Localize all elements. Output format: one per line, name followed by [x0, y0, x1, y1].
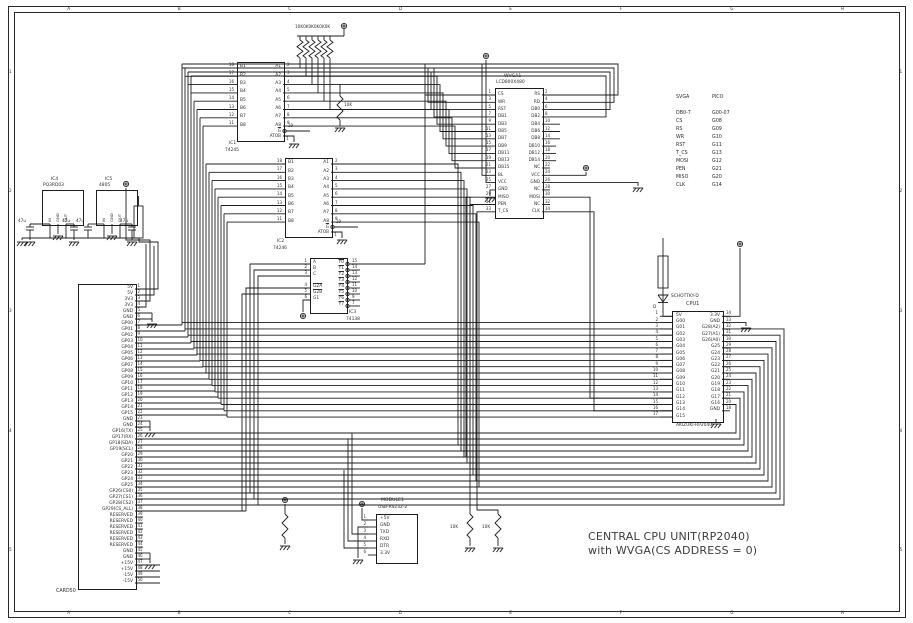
xcvr-pin-number: 14	[268, 192, 282, 196]
lcd-pin-number: 15	[478, 141, 491, 145]
cap-label: 47u	[18, 219, 26, 223]
lcd-pin-label: RST	[498, 107, 506, 111]
lcd-pin-label: DB4	[512, 122, 540, 126]
cpu-pin-label: G10	[676, 383, 685, 387]
resistor-label: 10K	[344, 103, 352, 107]
lcd-pin-label: DB5	[498, 129, 507, 133]
card50-pin-number: 28	[138, 446, 143, 450]
xcvr-pin-number: 16	[268, 176, 282, 180]
card50-pin-number: 3	[138, 296, 141, 300]
cpu-pin-number: 11	[644, 374, 658, 378]
card50-pin-number: 29	[138, 452, 143, 456]
lcd-pin-label: WR	[498, 100, 505, 104]
xcvr-pin-number: 3	[335, 167, 338, 171]
xcvr-pin-number: 18	[220, 63, 234, 67]
lcd-pin-label: DB0	[512, 107, 540, 111]
lcd-pin-label: NC	[512, 165, 540, 169]
ic3-pin-label: C	[313, 273, 316, 277]
pico-table-gpio: G09	[712, 128, 722, 133]
xcvr-pin-label: B8	[288, 220, 294, 224]
lcd-pin-number: 17	[478, 148, 491, 152]
lcd-pin-label: DB12	[512, 151, 540, 155]
pico-table-signal: RS	[676, 128, 682, 133]
lcd-pin-label: DB11	[498, 151, 509, 155]
lcd-pin-number: 30	[545, 192, 550, 196]
pico-table-header: PICO	[712, 96, 723, 101]
ic3-pin-number: 7	[352, 301, 355, 305]
cpu-pin-label: 5V	[676, 314, 682, 318]
cpu-pin-label: G25	[694, 345, 720, 349]
lcd-pin-number: 21	[478, 163, 491, 167]
pullup-network-label: 10K0K0K0K0K0K	[295, 25, 330, 29]
module-pin-number: 3	[358, 529, 366, 533]
xcvr-pin-number: 4	[335, 176, 338, 180]
ruler-column-letter: C	[288, 611, 291, 615]
card50-pin-number: 10	[138, 338, 143, 342]
reg1-ref: IC4	[51, 178, 58, 182]
card50-pin-number: 5	[138, 308, 141, 312]
pico-table-gpio: G14	[712, 184, 722, 189]
lcd-pin-label: DB6	[512, 129, 540, 133]
ruler-column-letter: F	[620, 611, 622, 615]
cpu-pin-label: G24	[694, 352, 720, 356]
cpu-pin-label: G02	[676, 333, 685, 337]
lcd-pin-label: DB1	[498, 114, 507, 118]
cpu-pin-number: 28	[726, 349, 731, 353]
card50-pin-number: 11	[138, 344, 143, 348]
xcvr-pin-number: 12	[220, 113, 234, 117]
lcd-pin-label: MISO	[498, 195, 509, 199]
cpu-pin-number: 14	[644, 393, 658, 397]
card50-pin-number: 44	[138, 542, 143, 546]
cpu-pin-label: G23	[694, 358, 720, 362]
ic3-pin-number: 1	[295, 259, 307, 263]
card50-pin-label: 5V	[80, 286, 133, 290]
xcvr-pin-label: A1	[254, 65, 281, 69]
card50-pin-number: 36	[138, 494, 143, 498]
card50-pin-number: 1	[138, 284, 141, 288]
card50-pin-number: 14	[138, 362, 143, 366]
regulator-pin-label: IN	[48, 218, 52, 222]
card50-pin-number: 13	[138, 356, 143, 360]
pico-table-signal: MISO	[676, 176, 688, 181]
ruler-row-number: 2	[900, 189, 903, 193]
cpu-pin-number: 24	[726, 374, 731, 378]
card50-pin-number: 47	[138, 560, 143, 564]
cpu-pin-label: G03	[676, 339, 685, 343]
lcd-pin-number: 23	[478, 170, 491, 174]
xcvr-pin-number: 15	[268, 184, 282, 188]
regulator-pin-label: OUT	[64, 214, 68, 222]
reg1-part: PQ3RD03	[43, 184, 64, 188]
ruler-column-letter: C	[288, 7, 291, 11]
cap-label: 47u	[76, 219, 84, 223]
title-line1: CENTRAL CPU UNIT(RP2040)	[588, 531, 750, 542]
xcvr-pin-number: 1	[286, 137, 289, 141]
ic3-pin-number: 3	[295, 271, 307, 275]
lcd-pin-number: 6	[545, 105, 548, 109]
cpu-pin-label: G06	[676, 358, 685, 362]
cpu-pin-number: 17	[644, 412, 658, 416]
xcvr-pin-number: 11	[268, 217, 282, 221]
xcvr-pin-label: A7	[254, 115, 281, 119]
ruler-column-letter: A	[67, 7, 70, 11]
lcd-pin-label: NC	[512, 187, 540, 191]
xcvr-pin-number: 18	[268, 159, 282, 163]
card50-pin-number: 43	[138, 536, 143, 540]
module-pin-label: RXD	[380, 538, 389, 542]
ic1-part: 74245	[225, 149, 239, 153]
xcvr-pin-number: 2	[287, 63, 290, 67]
xcvr-pin-label: B4	[288, 186, 294, 190]
xcvr-pin-label: B6	[240, 107, 246, 111]
ic3-pin-number: 9	[352, 295, 355, 299]
cpu-pin-label: G07	[676, 364, 685, 368]
lcd-pin-number: 22	[545, 163, 550, 167]
ruler-column-letter: D	[399, 611, 402, 615]
ruler-column-letter: D	[399, 7, 402, 11]
cpu-pin-label: G00	[676, 320, 685, 324]
lcd-pin-label: CLK	[512, 209, 540, 213]
ruler-row-number: 4	[9, 429, 12, 433]
card50-pin-label: -15V	[80, 580, 133, 584]
ic1-ref: IC1	[229, 142, 236, 146]
module-pin-number: 2	[358, 522, 366, 526]
card50-pin-number: 6	[138, 314, 141, 318]
xcvr-pin-label: B5	[240, 99, 246, 103]
cpu-pin-number: 8	[644, 355, 658, 359]
lcd-pin-number: 34	[545, 207, 550, 211]
ruler-row-number: 2	[9, 189, 12, 193]
lcd-pin-label: DB7	[498, 136, 507, 140]
xcvr-pin-label: B5	[288, 195, 294, 199]
pico-table-signal: MOSI	[676, 160, 688, 165]
lcd-pin-number: 1	[478, 90, 491, 94]
card50-pin-number: 4	[138, 302, 141, 306]
pico-table-signal: DB0-7	[676, 112, 691, 117]
lcd-pin-label: DB9	[498, 144, 507, 148]
lcd-pin-label: DB2	[512, 114, 540, 118]
card50-ref: CARD50	[56, 590, 76, 595]
lcd-pin-label: RS	[512, 92, 540, 96]
xcvr-dir-label: ATOB	[258, 134, 281, 138]
xcvr-pin-label: A4	[302, 186, 329, 190]
ruler-row-number: 4	[900, 429, 903, 433]
cpu-pin-label: G20	[694, 377, 720, 381]
xcvr-pin-number: 2	[335, 159, 338, 163]
ruler-column-letter: A	[67, 611, 70, 615]
card50-pin-number: 40	[138, 518, 143, 522]
xcvr-pin-label: B7	[288, 211, 294, 215]
reg2-ref: IC5	[105, 178, 112, 182]
lcd-pin-label: PEN	[498, 202, 506, 206]
cpu-pin-number: 34	[726, 311, 731, 315]
xcvr-pin-label: B4	[240, 90, 246, 94]
ic3-pin-label: G1	[313, 297, 319, 301]
lcd-pin-number: 24	[545, 170, 550, 174]
card50-pin-number: 41	[138, 524, 143, 528]
cpu-pin-number: 31	[726, 330, 731, 334]
pico-table-signal: T_CS	[676, 152, 688, 157]
lcd-pin-number: 13	[478, 134, 491, 138]
cpu-pin-label: GND	[694, 408, 720, 412]
regulator-pin-label: GND	[56, 213, 60, 222]
pico-table-header: SVGA	[676, 96, 689, 101]
pico-table-gpio: G13	[712, 152, 722, 157]
card50-pin-number: 9	[138, 332, 141, 336]
card50-pin-number: 23	[138, 416, 143, 420]
regulator-pin-label: IN	[102, 218, 106, 222]
ruler-column-letter: E	[509, 7, 512, 11]
cpu-pin-number: 12	[644, 381, 658, 385]
regulator-pin-label: GND	[110, 213, 114, 222]
pico-table-signal: WR	[676, 136, 684, 141]
cpu-pin-number: 26	[726, 362, 731, 366]
lcd-pin-number: 31	[478, 200, 491, 204]
cpu-pin-label: G27(A1)	[694, 333, 720, 337]
xcvr-pin-label: A8	[254, 124, 281, 128]
resistor-label: 10K	[482, 525, 490, 529]
lcd-pin-number: 20	[545, 156, 550, 160]
card50-pin-number: 18	[138, 386, 143, 390]
card50-pin-number: 20	[138, 398, 143, 402]
lcd-pin-number: 4	[545, 97, 548, 101]
cpu-pin-number: 9	[644, 362, 658, 366]
xcvr-pin-number: 14	[220, 96, 234, 100]
card50-pin-number: 45	[138, 548, 143, 552]
card50-pin-number: 15	[138, 368, 143, 372]
cpu-pin-number: 33	[726, 318, 731, 322]
ruler-column-letter: F	[620, 7, 622, 11]
lcd-pin-number: 2	[545, 90, 548, 94]
card50-pin-number: 32	[138, 470, 143, 474]
lcd-pin-label: GND	[498, 187, 508, 191]
cpu-pin-number: 7	[644, 349, 658, 353]
cpu-pin-number: 5	[644, 337, 658, 341]
card50-pin-number: 42	[138, 530, 143, 534]
card50-pin-number: 38	[138, 506, 143, 510]
ic3-part: 74138	[346, 318, 360, 322]
card50-pin-number: 19	[138, 392, 143, 396]
xcvr-pin-number: 4	[287, 80, 290, 84]
lcd-pin-label: GND	[512, 180, 540, 184]
cpu-pin-label: G12	[676, 396, 685, 400]
cpu-pin-label: G01	[676, 326, 685, 330]
xcvr-pin-number: 5	[287, 88, 290, 92]
lcd-part: LCD800X480	[496, 81, 525, 85]
card50-pin-number: 2	[138, 290, 141, 294]
xcvr-pin-label: B7	[240, 115, 246, 119]
lcd-pin-number: 29	[478, 192, 491, 196]
lcd-pin-number: 8	[545, 112, 548, 116]
title-line2: with WVGA(CS ADDRESS = 0)	[588, 545, 757, 556]
xcvr-pin-label: B2	[240, 74, 246, 78]
ruler-row-number: 5	[9, 548, 12, 552]
ruler-row-number: 3	[9, 309, 12, 313]
ic3-pin-number: 14	[352, 265, 357, 269]
lcd-pin-label: RD	[512, 100, 540, 104]
cpu-pin-number: 32	[726, 324, 731, 328]
xcvr-pin-label: B3	[288, 178, 294, 182]
card50-pin-number: 22	[138, 410, 143, 414]
ic3-pin-number: 10	[352, 289, 357, 293]
xcvr-pin-number: 13	[268, 201, 282, 205]
ruler-column-letter: B	[178, 7, 181, 11]
card50-pin-number: 31	[138, 464, 143, 468]
xcvr-pin-number: 13	[220, 105, 234, 109]
lcd-pin-number: 7	[478, 112, 491, 116]
cpu-pin-number: 18	[726, 406, 731, 410]
lcd-pin-number: 27	[478, 185, 491, 189]
lcd-pin-label: DB3	[498, 122, 507, 126]
xcvr-pin-label: A8	[302, 220, 329, 224]
resistor-label: 10K	[450, 525, 458, 529]
ic3-pin-number: 2	[295, 265, 307, 269]
cpu-pin-label: 3.3V	[694, 314, 720, 318]
pico-table-signal: RST	[676, 144, 685, 149]
cpu-pin-label: G11	[676, 389, 685, 393]
cpu-pin-label: G22	[694, 364, 720, 368]
xcvr-pin-number: 7	[335, 201, 338, 205]
lcd-pin-label: MOSI	[512, 195, 540, 199]
card50-pin-number: 39	[138, 512, 143, 516]
module-pin-label: +5V	[380, 517, 389, 521]
module-pin-label: DTR	[380, 545, 389, 549]
pico-table-gpio: G08	[712, 120, 722, 125]
lcd-pin-number: 12	[545, 127, 550, 131]
lcd-pin-number: 9	[478, 119, 491, 123]
lcd-pin-number: 5	[478, 105, 491, 109]
pico-table-signal: CS	[676, 120, 682, 125]
xcvr-pin-label: A5	[254, 99, 281, 103]
card50-pin-number: 50	[138, 578, 143, 582]
xcvr-pin-number: 16	[220, 80, 234, 84]
cpu-pin-label: G14	[676, 408, 685, 412]
lcd-pin-number: 25	[478, 178, 491, 182]
pico-table-gpio: G20	[712, 176, 722, 181]
xcvr-dir-label: ATOB	[306, 230, 329, 234]
ruler-row-number: 1	[900, 70, 903, 74]
cpu-pin-number: 25	[726, 368, 731, 372]
card50-pin-number: 16	[138, 374, 143, 378]
ic3-pin-number: 5	[295, 289, 307, 293]
card50-pin-number: 24	[138, 422, 143, 426]
xcvr-pin-label: B2	[288, 170, 294, 174]
module-pin-number: 6	[358, 550, 366, 554]
cpu-pin-label: G15	[676, 415, 685, 419]
cpu-pin-number: 30	[726, 337, 731, 341]
card50-pin-number: 25	[138, 428, 143, 432]
card50-pin-number: 35	[138, 488, 143, 492]
lcd-pin-number: 26	[545, 178, 550, 182]
cpu-pin-number: 2	[644, 318, 658, 322]
ruler-column-letter: G	[730, 611, 733, 615]
pico-table-gpio: G10	[712, 136, 722, 141]
xcvr-pin-number: 1	[334, 233, 337, 237]
lcd-pin-label: T_CS	[498, 209, 508, 213]
cpu-pin-label: GND	[694, 320, 720, 324]
xcvr-pin-label: B1	[240, 65, 246, 69]
cpu-pin-label: G26(A0)	[694, 339, 720, 343]
xcvr-pin-number: 15	[220, 88, 234, 92]
lcd-pin-label: BL	[498, 173, 503, 177]
cpu-pin-number: 20	[726, 400, 731, 404]
lcd-pin-number: 19	[478, 156, 491, 160]
lcd-pin-label: DB13	[498, 158, 509, 162]
cpu-pin-number: 15	[644, 400, 658, 404]
lcd-pin-label: VCC	[498, 180, 507, 184]
xcvr-pin-number: 12	[268, 209, 282, 213]
xcvr-pin-number: 19	[288, 124, 293, 128]
cpu-pin-label: G16	[694, 402, 720, 406]
ic3-pin-number: 6	[295, 295, 307, 299]
lcd-pin-label: DB10	[512, 144, 540, 148]
lcd-pin-number: 3	[478, 97, 491, 101]
xcvr-pin-label: A1	[302, 161, 329, 165]
ic3-pin-number: 11	[352, 283, 357, 287]
ruler-column-letter: B	[178, 611, 181, 615]
cpu-pin-label: G09	[676, 377, 685, 381]
module-part: USB-RS232-2	[378, 506, 407, 510]
card50-pin-number: 46	[138, 554, 143, 558]
cpu-pin-number: 1	[644, 311, 658, 315]
xcvr-pin-label: B6	[288, 203, 294, 207]
module-pin-label: TXD	[380, 531, 389, 535]
cpu-pin-label: G05	[676, 352, 685, 356]
cpu-pin-label: G18	[694, 389, 720, 393]
card50-pin-number: 33	[138, 476, 143, 480]
cpu-pin-label: G13	[676, 402, 685, 406]
ruler-row-number: 5	[900, 548, 903, 552]
xcvr-pin-label: A2	[254, 74, 281, 78]
xcvr-pin-number: 17	[220, 71, 234, 75]
card50-pin-number: 30	[138, 458, 143, 462]
pico-table-signal: CLK	[676, 184, 685, 189]
card50-pin-number: 8	[138, 326, 141, 330]
xcvr-pin-label: A6	[302, 203, 329, 207]
pico-table-gpio: G21	[712, 168, 722, 173]
xcvr-pin-number: 6	[287, 96, 290, 100]
xcvr-pin-number: 8	[335, 209, 338, 213]
module-pin-number: 1	[358, 515, 366, 519]
xcvr-pin-number: 3	[287, 71, 290, 75]
cpu-pin-label: G08	[676, 370, 685, 374]
xcvr-pin-label: A3	[302, 178, 329, 182]
cpu-pin-number: 22	[726, 387, 731, 391]
pico-table-gpio: G00-07	[712, 112, 730, 117]
xcvr-pin-label: B3	[240, 82, 246, 86]
lcd-pin-number: 11	[478, 127, 491, 131]
card50-pin-number: 34	[138, 482, 143, 486]
cpu-pin-number: 23	[726, 381, 731, 385]
ruler-column-letter: H	[841, 7, 844, 11]
cpu-pin-label: G17	[694, 396, 720, 400]
ruler-column-letter: E	[509, 611, 512, 615]
cpu-part: AKIZUKI-RP2040	[676, 424, 712, 428]
cpu-pin-number: 21	[726, 393, 731, 397]
ruler-row-number: 3	[900, 309, 903, 313]
lcd-ref: WVGA1	[504, 75, 521, 80]
pico-table-signal: PEN	[676, 168, 686, 173]
ic3-pin-number: 4	[295, 283, 307, 287]
card50-pin-number: 21	[138, 404, 143, 408]
card50-pin-number: 26	[138, 434, 143, 438]
module-ref: MODULE1	[381, 499, 404, 504]
cpu-pin-number: 27	[726, 355, 731, 359]
card50-pin-number: 7	[138, 320, 141, 324]
lcd-pin-label: CS	[498, 92, 504, 96]
cpu-pin-label: G28(A2)	[694, 326, 720, 330]
